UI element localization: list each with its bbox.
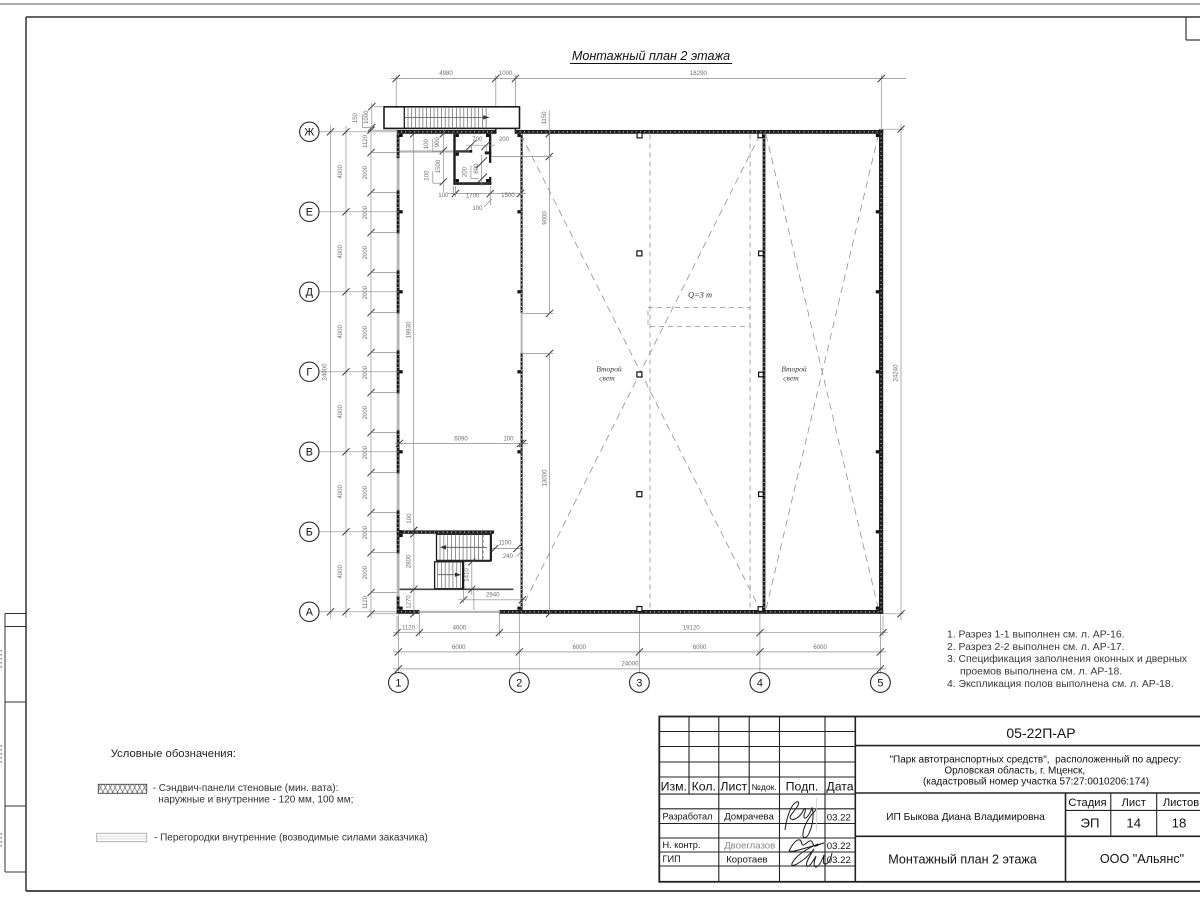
svg-text:ИП Быкова Диана Владимировна: ИП Быкова Диана Владимировна — [886, 812, 1045, 823]
svg-text:В: В — [306, 447, 313, 459]
svg-text:05-22П-АР: 05-22П-АР — [1006, 725, 1075, 741]
svg-text:14: 14 — [1126, 816, 1141, 831]
svg-text:4000: 4000 — [337, 484, 344, 498]
svg-text:6000: 6000 — [573, 644, 587, 651]
svg-text:1: 1 — [395, 678, 401, 690]
svg-text:03.22: 03.22 — [827, 841, 851, 852]
svg-text:900: 900 — [434, 137, 441, 148]
svg-text:2000: 2000 — [362, 485, 369, 499]
svg-text:проемов выполнена см. л. АР-18: проемов выполнена см. л. АР-18. — [960, 667, 1122, 678]
svg-text:4000: 4000 — [453, 625, 467, 632]
svg-text:2000: 2000 — [362, 205, 369, 219]
svg-text:4000: 4000 — [337, 324, 344, 338]
svg-text:13000: 13000 — [542, 469, 549, 487]
svg-text:2940: 2940 — [486, 591, 500, 598]
svg-text:2000: 2000 — [362, 405, 369, 419]
svg-text:200: 200 — [462, 166, 469, 177]
svg-text:3: 3 — [636, 678, 642, 690]
svg-text:Изм.: Изм. — [661, 780, 687, 794]
svg-text:6000: 6000 — [452, 644, 466, 651]
svg-text:6000: 6000 — [693, 644, 707, 651]
svg-text:Коротаев: Коротаев — [726, 855, 767, 866]
svg-text:ООО "Альянс": ООО "Альянс" — [1100, 852, 1184, 866]
svg-text:1000: 1000 — [499, 70, 513, 77]
svg-text:3. Спецификация заполнения око: 3. Спецификация заполнения оконных и две… — [947, 653, 1188, 665]
svg-text:1. Разрез 1-1 выполнен см. л.: 1. Разрез 1-1 выполнен см. л. АР-16. — [947, 630, 1125, 641]
svg-text:Г: Г — [306, 367, 312, 379]
svg-text:6090: 6090 — [454, 435, 468, 442]
svg-text:Е: Е — [306, 207, 313, 219]
svg-text:5: 5 — [877, 678, 883, 690]
svg-text:150: 150 — [352, 113, 359, 124]
svg-text:Лист: Лист — [720, 780, 747, 794]
svg-text:03.22: 03.22 — [827, 813, 851, 824]
svg-text:1100: 1100 — [498, 540, 512, 547]
svg-text:2: 2 — [516, 678, 522, 690]
svg-text:24240: 24240 — [893, 364, 900, 382]
svg-text:"Парк автотранспортных средств: "Парк автотранспортных средств", располо… — [890, 755, 1182, 766]
svg-text:- Перегородки внутренние (возв: - Перегородки внутренние (возводимые сил… — [154, 833, 428, 844]
svg-text:Ж: Ж — [304, 127, 314, 139]
svg-text:700: 700 — [472, 136, 483, 143]
svg-text:Подп.: Подп. — [786, 780, 819, 794]
svg-text:Монтажный план 2 этажа: Монтажный план 2 этажа — [888, 853, 1037, 867]
svg-text:24000: 24000 — [622, 660, 640, 667]
svg-text:2000: 2000 — [362, 285, 369, 299]
svg-text:100: 100 — [423, 139, 430, 150]
svg-text:Условные обозначения:: Условные обозначения: — [111, 748, 236, 760]
svg-text:№док.: №док. — [752, 782, 777, 792]
svg-text:Д: Д — [306, 287, 314, 299]
svg-text:1150: 1150 — [541, 111, 548, 125]
svg-text:4: 4 — [757, 678, 763, 690]
svg-text:2000: 2000 — [362, 245, 369, 259]
svg-text:1270: 1270 — [406, 595, 413, 609]
svg-text:свет: свет — [783, 374, 799, 383]
svg-text:Второй: Второй — [596, 365, 622, 374]
svg-text:Двоеглазов: Двоеглазов — [724, 841, 775, 852]
svg-text:2000: 2000 — [362, 445, 369, 459]
svg-text:Листов: Листов — [1163, 797, 1199, 809]
svg-text:Разработал: Разработал — [663, 812, 713, 822]
svg-text:(кадастровый номер участка 57:: (кадастровый номер участка 57:27:0010206… — [923, 777, 1149, 788]
svg-text:1410: 1410 — [463, 568, 470, 582]
svg-text:2000: 2000 — [362, 165, 369, 179]
svg-text:Монтажный план 2 этажа: Монтажный план 2 этажа — [572, 49, 730, 63]
svg-text:24000: 24000 — [322, 363, 329, 381]
svg-text:2800: 2800 — [406, 554, 413, 568]
svg-text:А: А — [306, 607, 314, 619]
svg-text:2000: 2000 — [362, 325, 369, 339]
svg-text:4000: 4000 — [337, 164, 344, 178]
svg-text:Q=3 т: Q=3 т — [688, 291, 712, 300]
svg-text:Б: Б — [306, 527, 313, 539]
svg-text:1120: 1120 — [362, 134, 369, 148]
svg-text:2000: 2000 — [362, 365, 369, 379]
svg-text:1700: 1700 — [466, 192, 480, 199]
svg-text:1120: 1120 — [402, 625, 416, 632]
svg-text:4. Экспликация полов выполнена: 4. Экспликация полов выполнена см. л. АР… — [947, 679, 1174, 690]
svg-text:18290: 18290 — [690, 70, 708, 77]
svg-text:1000: 1000 — [363, 110, 370, 124]
svg-text:- Сэндвич-панели стеновые (мин: - Сэндвич-панели стеновые (мин. вата): — [153, 783, 339, 794]
svg-text:свет: свет — [599, 374, 615, 383]
svg-text:наружные и внутренние - 120 мм: наружные и внутренние - 120 мм, 100 мм; — [158, 795, 353, 806]
svg-text:Лист: Лист — [1122, 797, 1146, 809]
svg-text:Н. контр.: Н. контр. — [663, 840, 701, 850]
svg-text:18: 18 — [1172, 816, 1187, 831]
svg-text:19830: 19830 — [406, 321, 413, 339]
svg-text:100: 100 — [406, 513, 413, 524]
svg-text:200: 200 — [499, 136, 510, 143]
svg-text:2000: 2000 — [362, 565, 369, 579]
svg-text:Домрачева: Домрачева — [724, 811, 774, 822]
svg-text:100: 100 — [472, 205, 483, 212]
svg-text:19120: 19120 — [683, 625, 701, 632]
svg-text:4980: 4980 — [439, 70, 453, 77]
svg-text:4000: 4000 — [337, 564, 344, 578]
svg-text:1500: 1500 — [501, 192, 515, 199]
svg-text:240: 240 — [503, 553, 514, 560]
svg-text:6000: 6000 — [813, 644, 827, 651]
svg-text:4000: 4000 — [337, 404, 344, 418]
svg-text:2000: 2000 — [362, 525, 369, 539]
svg-text:2. Разрез 2-2 выполнен см. л.: 2. Разрез 2-2 выполнен см. л. АР-17. — [947, 642, 1125, 653]
svg-text:Второй: Второй — [781, 365, 807, 374]
svg-text:4000: 4000 — [337, 244, 344, 258]
svg-text:Кол.: Кол. — [692, 780, 716, 794]
svg-text:ЭП: ЭП — [1081, 816, 1100, 831]
svg-text:ГИП: ГИП — [663, 854, 681, 864]
svg-text:800: 800 — [473, 163, 480, 174]
svg-text:Дата: Дата — [826, 780, 853, 794]
svg-text:100: 100 — [424, 170, 431, 181]
svg-text:100: 100 — [438, 192, 449, 199]
svg-text:03.22: 03.22 — [827, 855, 851, 866]
svg-text:100: 100 — [503, 435, 514, 442]
svg-text:1500: 1500 — [435, 159, 442, 173]
svg-text:Орловская область, г. Мценск,: Орловская область, г. Мценск, — [944, 765, 1085, 777]
svg-text:9000: 9000 — [542, 211, 549, 225]
svg-text:Стадия: Стадия — [1068, 797, 1106, 809]
svg-text:1120: 1120 — [362, 595, 369, 609]
